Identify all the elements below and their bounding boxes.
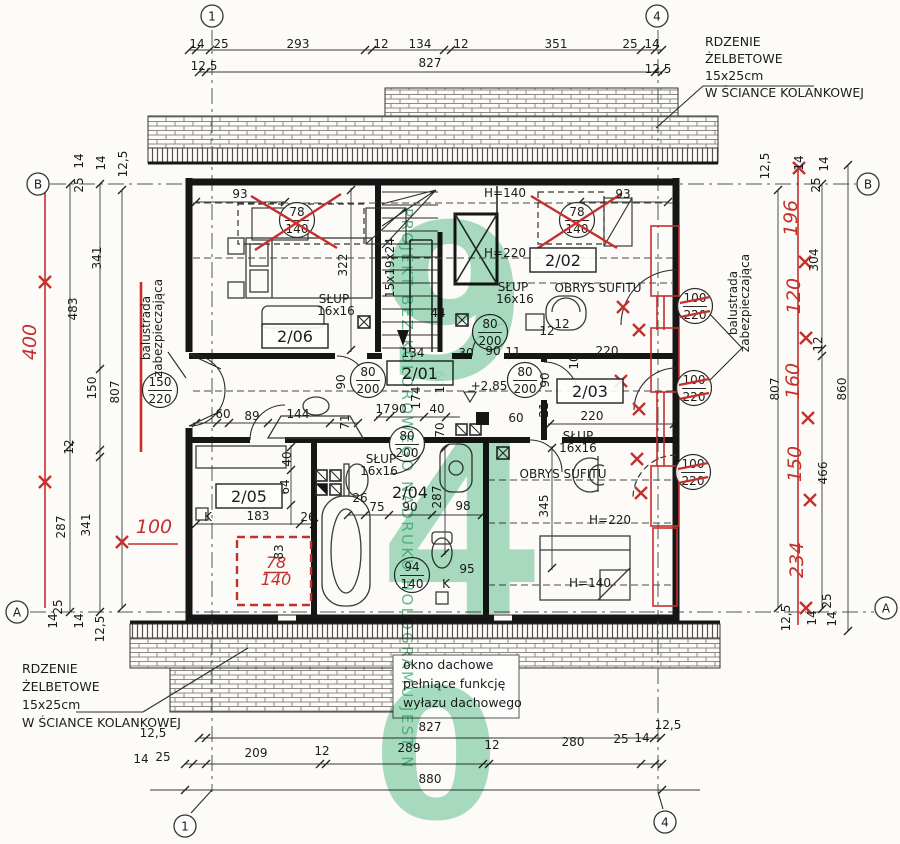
dim-top: 293 — [287, 37, 310, 51]
floor-plan-sheet: 7814078140150220802008020080200802009414… — [0, 0, 900, 844]
dim-interior: 26 — [352, 491, 367, 505]
dim-left: 150 — [85, 377, 99, 400]
dim-top: 12,5 — [191, 59, 218, 73]
dim-right: 12,5 — [758, 153, 772, 180]
dim-left: 25 — [51, 599, 65, 614]
column-label: 16x16 — [559, 441, 597, 455]
dim-left: 12 — [62, 439, 76, 454]
height-label: H=220 — [589, 513, 631, 527]
ceiling-outline-label: OBRYS SUFITU — [555, 281, 642, 295]
dim-left: 14 — [72, 613, 86, 628]
grid-marker-label: B — [864, 178, 872, 192]
dim-right: 25 — [809, 177, 823, 192]
grid-marker-label: 4 — [653, 10, 661, 24]
green-watermark: 940PROJEKT BEZ KOLOROWEGO NADRUKU HOLOGR… — [373, 178, 545, 844]
dim-interior: 90 — [334, 374, 348, 389]
dim-bottom: 280 — [562, 735, 585, 749]
dim-left: 14 — [46, 613, 60, 628]
floor-plan-drawing: 7814078140150220802008020080200802009414… — [0, 0, 900, 844]
room-number: 2/03 — [572, 382, 608, 401]
room-number: 2/05 — [231, 487, 267, 506]
dim-right: 160 — [782, 363, 804, 399]
dim-right: 807 — [768, 378, 782, 401]
grid-marker-label: A — [13, 606, 22, 620]
dim-left: 100 — [136, 516, 172, 538]
balustrade-note-left: zabezpieczająca — [151, 279, 165, 377]
door-window-size-tag: 78140 — [531, 194, 621, 250]
rebar-note-top-right: RDZENIE — [705, 34, 761, 49]
dim-top: 25 — [213, 37, 228, 51]
bathtub — [322, 496, 370, 606]
rebar-note-top-right: W ŚCIANCE KOLANKOWEJ — [705, 85, 864, 100]
dim-right: 234 — [786, 542, 808, 578]
grid-marker-label: 1 — [181, 820, 189, 834]
dim-interior: 60 — [215, 407, 230, 421]
room-label-2-03: 2/03 — [557, 379, 623, 403]
dim-interior: 220 — [581, 409, 604, 423]
dim-right: 12 — [811, 336, 825, 351]
dim-interior: 26 — [300, 510, 315, 524]
dim-interior: 183 — [247, 509, 270, 523]
room-label-2-06: 2/06 — [262, 324, 328, 348]
grid-marker-1: 1 — [174, 815, 196, 837]
dim-left: 12,5 — [93, 616, 107, 643]
dim-interior: 10 — [567, 354, 581, 369]
dim-bottom: 14 — [133, 752, 148, 766]
grid-marker-B: B — [27, 173, 49, 195]
dim-interior: 93 — [615, 187, 630, 201]
grid-marker-A: A — [6, 601, 28, 623]
column-label: 16x16 — [317, 304, 355, 318]
dim-top: 12,5 — [645, 62, 672, 76]
dim-right: 12,5 — [779, 605, 793, 632]
dim-left: 25 — [72, 177, 86, 192]
dim-right: 25 — [820, 593, 834, 608]
dim-top: 14 — [644, 37, 659, 51]
grid-marker-label: 1 — [208, 10, 216, 24]
rebar-note-bottom-left: RDZENIE — [22, 661, 78, 676]
room-number: 2/02 — [545, 251, 581, 270]
rebar-note-top-right: ŻELBETOWE — [705, 51, 783, 66]
dim-right: 120 — [783, 278, 805, 314]
wardrobe-2-05 — [196, 446, 286, 468]
dim-left: 14 — [72, 153, 86, 168]
dim-interior: 89 — [244, 409, 259, 423]
grid-marker-label: B — [34, 178, 42, 192]
dim-right: 14 — [805, 610, 819, 625]
dim-right: 860 — [835, 378, 849, 401]
watermark-text: PROJEKT BEZ KOLOROWEGO NADRUKU HOLOGRAMU… — [398, 208, 416, 770]
dim-right: 304 — [807, 249, 821, 272]
door-window-size-tag: 100220 — [676, 455, 711, 490]
dim-left: 14 — [94, 155, 108, 170]
dim-left: 12,5 — [116, 151, 130, 178]
room-number: 2/06 — [277, 327, 313, 346]
dim-top: 827 — [419, 56, 442, 70]
dim-interior: 322 — [336, 254, 350, 277]
balustrade-note-right: zabezpieczająca — [738, 254, 752, 352]
height-label: H=140 — [569, 576, 611, 590]
dim-top: 134 — [409, 37, 432, 51]
dim-interior: 71 — [338, 414, 352, 429]
dim-interior: 40 — [280, 451, 294, 466]
grid-marker-B: B — [857, 173, 879, 195]
dim-left: 807 — [108, 381, 122, 404]
dim-left: 400 — [19, 324, 41, 360]
dim-right: 150 — [784, 446, 806, 482]
dim-left: 483 — [66, 298, 80, 321]
dim-interior: 93 — [232, 187, 247, 201]
rebar-note-bottom-left: W ŚCIANCE KOLANKOWEJ — [22, 715, 181, 730]
grid-marker-4: 4 — [654, 811, 676, 833]
dim-interior: 83 — [272, 544, 286, 559]
dim-bottom: 12,5 — [655, 718, 682, 732]
dim-interior: 12 — [539, 324, 554, 338]
door-window-size-tag: 100220 — [677, 371, 712, 406]
tag-height: 200 — [357, 382, 380, 396]
tag-height: 220 — [149, 392, 172, 406]
bed-bottom-right — [540, 536, 630, 600]
dim-right: 14 — [825, 611, 839, 626]
dim-left: 341 — [79, 514, 93, 537]
tag-width: 78 — [569, 205, 584, 219]
dim-left: 341 — [90, 247, 104, 270]
dim-bottom: 12 — [314, 744, 329, 758]
dim-top: 14 — [189, 37, 204, 51]
tag-width: 78 — [289, 205, 304, 219]
dim-interior: 90 — [538, 372, 552, 387]
dim-interior: 12 — [554, 317, 569, 331]
dim-right: 14 — [792, 155, 806, 170]
grid-marker-4: 4 — [646, 5, 668, 27]
dim-right: 14 — [817, 156, 831, 171]
dim-right: 466 — [816, 462, 830, 485]
tag-width: 80 — [360, 365, 375, 379]
dim-right: 196 — [780, 200, 802, 236]
room-label-2-05: 2/05 — [216, 484, 282, 508]
rebar-note-bottom-left: ŻELBETOWE — [22, 679, 100, 694]
room-label-2-02: 2/02 — [530, 248, 596, 272]
dim-top: 12 — [373, 37, 388, 51]
dim-bottom: 209 — [245, 746, 268, 760]
watermark-digit: 0 — [373, 652, 498, 844]
dim-bottom: 25 — [613, 732, 628, 746]
rebar-note-bottom-left: 15x25cm — [22, 697, 80, 712]
grid-marker-label: 4 — [661, 816, 669, 830]
dim-bottom: 25 — [155, 750, 170, 764]
dim-bottom: 14 — [634, 731, 649, 745]
dim-interior: 144 — [287, 407, 310, 421]
dim-interior: 220 — [596, 344, 619, 358]
door-window-size-tag: 100220 — [678, 289, 713, 324]
dim-top: 12 — [453, 37, 468, 51]
grid-marker-label: A — [882, 602, 891, 616]
dim-top: 351 — [545, 37, 568, 51]
dim-left: 287 — [54, 516, 68, 539]
bed-room-2-06 — [228, 238, 372, 298]
rebar-note-top-right: 15x25cm — [705, 68, 763, 83]
dim-interior: K — [204, 510, 213, 524]
grid-marker-A: A — [875, 597, 897, 619]
dim-top: 25 — [622, 37, 637, 51]
grid-marker-1: 1 — [201, 5, 223, 27]
